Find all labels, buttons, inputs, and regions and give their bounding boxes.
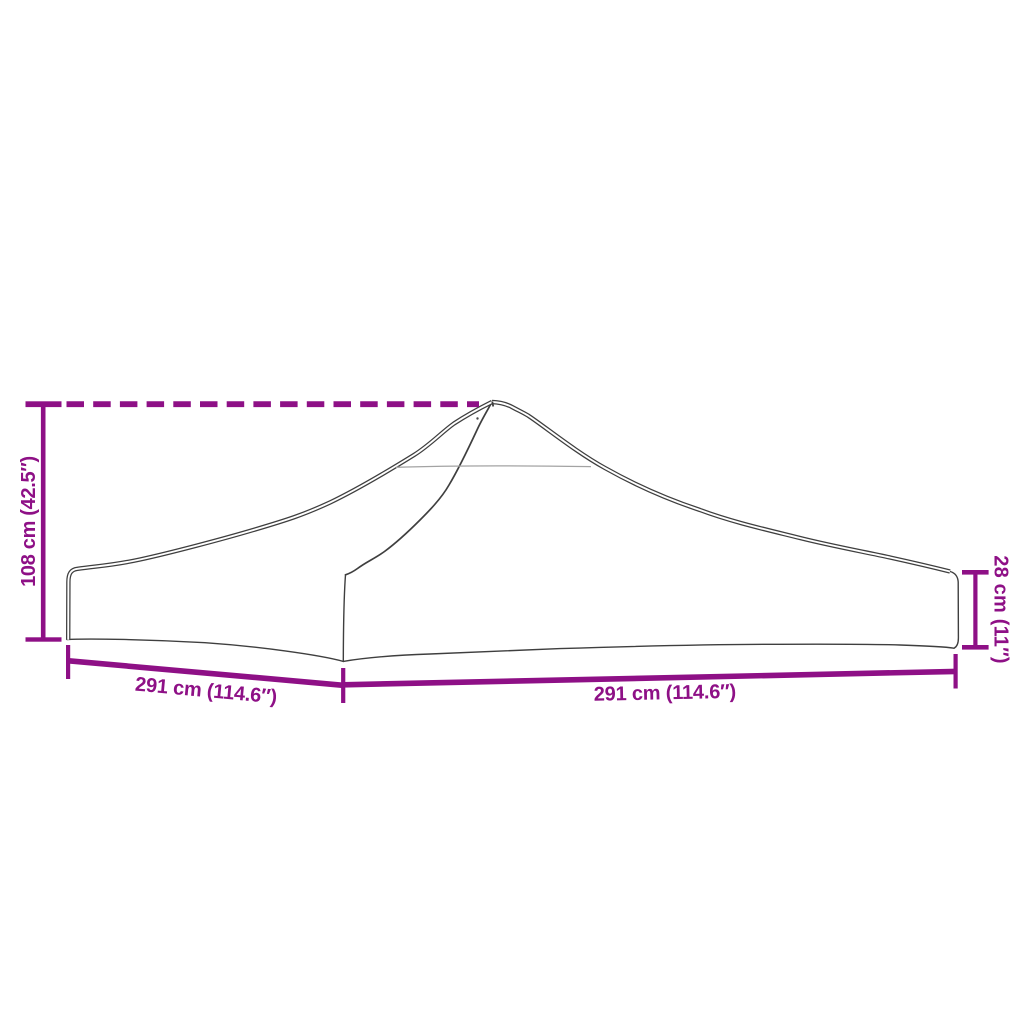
svg-text:291 cm (114.6″): 291 cm (114.6″) [594, 681, 737, 706]
svg-text:28 cm (11″): 28 cm (11″) [989, 555, 1011, 664]
svg-text:108 cm (42.5″): 108 cm (42.5″) [18, 456, 40, 587]
